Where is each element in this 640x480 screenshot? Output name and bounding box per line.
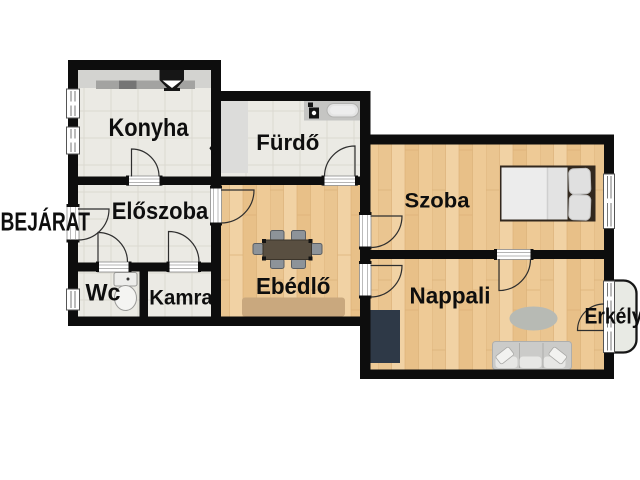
svg-text:Nappali: Nappali xyxy=(410,283,491,309)
svg-text:Ebédlő: Ebédlő xyxy=(256,273,331,299)
svg-text:Előszoba: Előszoba xyxy=(112,198,209,225)
svg-text:Fürdő: Fürdő xyxy=(256,130,319,155)
svg-text:Konyha: Konyha xyxy=(109,114,190,142)
svg-text:Kamra: Kamra xyxy=(149,285,213,309)
svg-text:Wc: Wc xyxy=(86,280,121,307)
svg-text:Erkély: Erkély xyxy=(585,304,640,329)
svg-text:Szoba: Szoba xyxy=(405,188,471,212)
svg-text:BEJÁRAT: BEJÁRAT xyxy=(1,208,91,237)
